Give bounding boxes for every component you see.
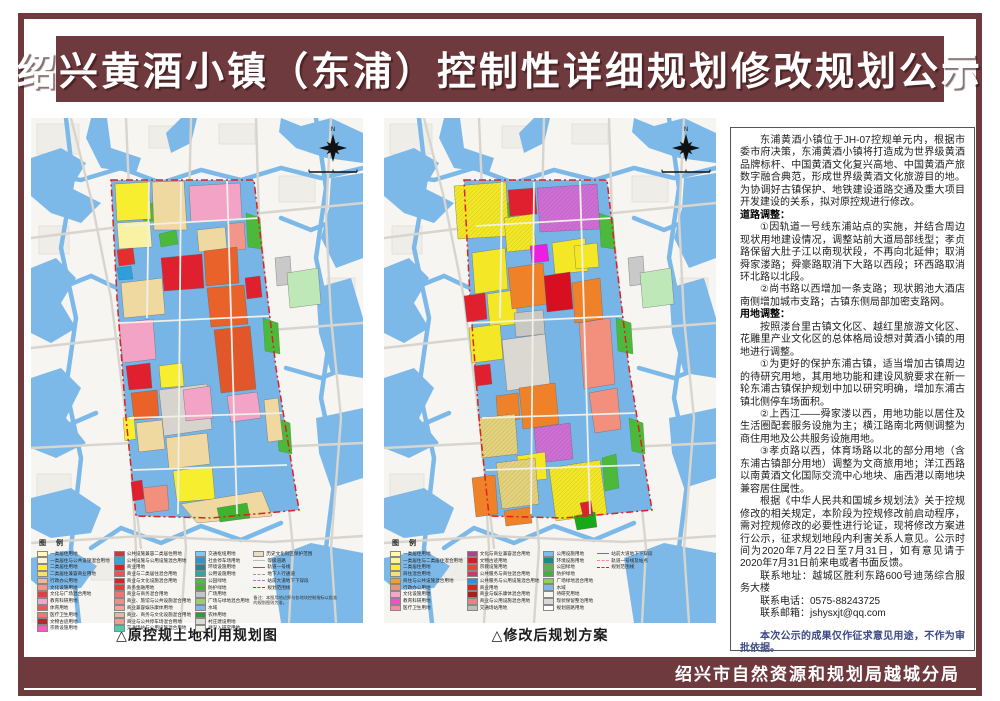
legend-item-label: 防护绿地 xyxy=(556,571,574,577)
legend-item-label: 公共服务与公用设施混合用地 xyxy=(480,578,540,584)
land-use-parcel xyxy=(214,326,256,393)
legend-line-symbol xyxy=(597,567,609,568)
legend-item-label: 广场绿地混合用地 xyxy=(556,578,593,584)
legend-item-label: 商住与公共设施混合用地 xyxy=(403,578,454,584)
legend-item-label: 教育科研用地 xyxy=(50,598,78,604)
legend-color-swatch xyxy=(390,564,401,571)
legend-item-label: 公共设施与公用设施混合用地 xyxy=(127,558,187,564)
legend-item-label: 站前大道地下下穿段 xyxy=(611,551,652,557)
legend-column: 历史文化街区保护范围等级道路轨道一号线地下人行通道站前大道地下下穿段规划范围线备… xyxy=(253,551,339,631)
notice-paragraph: ②尚书路以西增加一条支路；现状鹅池大酒店南侧增加城市支路；古镇东侧局部加密支路网… xyxy=(740,284,965,309)
legend-line-symbol xyxy=(253,587,265,588)
legend-item-label: 地下人行通道 xyxy=(267,571,295,577)
legend-item-label: 规划道路用地 xyxy=(556,605,584,611)
legend-item: 商业与公用设施混合用地 xyxy=(467,598,540,604)
legend-color-swatch xyxy=(390,578,401,585)
legend-item-label: 宗教设施用地 xyxy=(480,564,508,570)
legend-item-label: 商业用地 xyxy=(480,585,498,591)
legend-item: 等级道路 xyxy=(253,558,339,564)
legend-item: 防护绿地 xyxy=(543,571,593,577)
land-use-parcel xyxy=(189,183,242,222)
legend-item-label: 农林用地 xyxy=(208,612,226,618)
legend-item: 文化设施用地 xyxy=(390,592,463,598)
legend-color-swatch xyxy=(543,591,554,598)
legend-item-label: 广场与绿地混合用地 xyxy=(208,598,249,604)
land-use-parcel xyxy=(117,248,135,266)
legend-color-swatch xyxy=(37,618,48,625)
land-use-parcel xyxy=(464,293,487,322)
legend-column: 公共设施兼容二类居住用地公共设施与公用设施混合用地商业用地商业与二类居住混合用地… xyxy=(114,551,191,631)
legend-item-label: 二类居住用地 xyxy=(50,564,78,570)
legend-item: 商业用地 xyxy=(114,565,191,571)
legend-item: 公用设施用地 xyxy=(195,571,249,577)
legend-item-label: 行政办公用地 xyxy=(403,585,431,591)
legend-color-swatch xyxy=(37,625,48,632)
legend-item: 轨道一号线 xyxy=(253,565,339,571)
notice-paragraph: 按照溇台里古镇文化区、越红里旅游文化区、花雕里产业文化区的总体格局设想对黄酒小镇… xyxy=(740,322,965,359)
contact-line: 联系电话：0575-88243725 xyxy=(740,596,965,608)
legend-color-swatch xyxy=(195,625,206,632)
legend-color-swatch xyxy=(390,557,401,564)
legend-item-label: 文化与商业兼容混合用地 xyxy=(480,551,531,557)
legend-item: 体育用地 xyxy=(37,605,110,611)
legend-item-label: 文物古迹用地 xyxy=(480,558,508,564)
legend-item-label: 商业兼容娱乐康体用地 xyxy=(127,605,173,611)
legend-item: 二类居住用地 xyxy=(390,565,463,571)
legend-title: 图 例 xyxy=(39,538,357,548)
legend-color-swatch xyxy=(37,598,48,605)
legend-color-swatch xyxy=(543,564,554,571)
legend-color-swatch xyxy=(467,564,478,571)
legend-item: 宗教设施用地 xyxy=(467,565,540,571)
land-use-parcel xyxy=(474,364,492,386)
legend-color-swatch xyxy=(37,551,48,558)
land-use-parcel xyxy=(514,310,545,337)
legend-color-swatch xyxy=(195,612,206,619)
legend-color-swatch xyxy=(467,605,478,612)
land-use-parcel xyxy=(166,433,210,469)
notice-paragraph: ①为更好的保护东浦古镇，适当增加古镇周边的待研究用地，其用地功能和建设风貌要求在… xyxy=(740,359,965,409)
legend-line-symbol xyxy=(253,567,265,568)
legend-item-label: 公用设施用地 xyxy=(208,571,236,577)
page-title: 绍兴黄酒小镇（东浦）控制性详细规划修改规划公示 xyxy=(17,41,983,97)
legend-item: 公共设施与公用设施混合用地 xyxy=(114,558,191,564)
land-use-parcel xyxy=(123,416,136,441)
legend-color-swatch xyxy=(37,612,48,619)
legend-item: 社会停车场用地 xyxy=(195,558,249,564)
legend-color-swatch xyxy=(195,571,206,578)
legend-color-swatch xyxy=(114,578,125,585)
legend-item: 商住与公共设施混合用地 xyxy=(390,578,463,584)
legend-item: 商业用地 xyxy=(467,585,540,591)
legend-item-label: 站前大道地下下穿段 xyxy=(267,578,308,584)
legend-item-label: 历史文化街区保护范围 xyxy=(266,551,312,557)
legend-item-label: 文物古迹用地 xyxy=(50,619,78,625)
legend-item-label: 行政办公用地 xyxy=(50,578,78,584)
legend-item: 文物古迹用地 xyxy=(467,558,540,564)
land-use-parcel xyxy=(121,278,165,318)
land-use-parcel xyxy=(245,276,262,299)
land-use-parcel xyxy=(508,188,537,216)
legend-item: 规划道路用地 xyxy=(543,605,593,611)
legend-color-swatch xyxy=(543,578,554,585)
legend-color-swatch xyxy=(195,584,206,591)
legend-item-label: 一类居住用地 xyxy=(403,551,431,557)
legend-color-swatch xyxy=(467,551,478,558)
legend-color-swatch xyxy=(543,551,554,558)
legend-item: 宗教设施用地 xyxy=(37,626,110,632)
legend-item-label: 规划范围线 xyxy=(267,585,290,591)
legend-color-swatch xyxy=(467,557,478,564)
land-use-parcel xyxy=(640,268,674,308)
land-use-parcel xyxy=(173,466,215,502)
legend-item: 环境设施用地 xyxy=(543,558,593,564)
svg-text:N: N xyxy=(331,127,335,133)
legend-item-label: 文化与广场混合用地 xyxy=(50,591,91,597)
legend-item: 商业与文化设施混合用地 xyxy=(114,578,191,584)
legend-item: 文化与广场混合用地 xyxy=(37,592,110,598)
legend-color-swatch xyxy=(543,584,554,591)
legend-color-swatch xyxy=(195,564,206,571)
legend-column: 交通枢纽用地社会停车场用地环境设施用地公用设施用地公园绿地防护绿地广场用地广场与… xyxy=(195,551,249,631)
legend-item-label: 等级道路 xyxy=(267,558,285,564)
legend-item: 交通场站用地 xyxy=(467,605,540,611)
legend-item-label: 水域 xyxy=(556,585,565,591)
legend-item: 商住混合用地 xyxy=(390,571,463,577)
legend-item: 公园绿地 xyxy=(195,578,249,584)
legend-line-symbol xyxy=(597,553,609,554)
legend-item-label: 宗教设施用地 xyxy=(50,625,78,631)
disclaimer-note: 本次公示的成果仅作征求意见用途，不作为审批依据。 xyxy=(740,631,965,656)
green-space xyxy=(602,454,619,491)
legend-item: 教育科研用地 xyxy=(37,598,110,604)
land-use-parcel xyxy=(119,319,156,363)
legend-item: 公共服务与公用设施混合用地 xyxy=(467,578,540,584)
legend-item-label: 商业与公用设施混合用地 xyxy=(480,598,531,604)
modified-map-caption: △修改后规划方案 xyxy=(384,625,716,645)
legend-item-label: 商业、旅馆与公共设施混合用地 xyxy=(127,598,191,604)
legend-line-symbol xyxy=(597,560,609,561)
legend-item-label: 商业与二类居住混合用地 xyxy=(127,571,178,577)
legend-color-swatch xyxy=(37,591,48,598)
legend-color-swatch xyxy=(467,584,478,591)
green-space xyxy=(263,318,280,354)
legend-item-label: 医疗卫生用地 xyxy=(50,612,78,618)
legend-item-label: 商业、商务与文化设施混合用地 xyxy=(127,612,191,618)
legend-item-label: 水域 xyxy=(208,605,217,611)
legend-item: 农林用地 xyxy=(195,612,249,618)
legend-item-label: 医疗卫生用地 xyxy=(403,605,431,611)
legend-item: 广场用地 xyxy=(195,592,249,598)
legend-item-label: 公园绿地 xyxy=(556,564,574,570)
legend-color-swatch xyxy=(195,557,206,564)
legend-item: 一类居住与公共设施混合用地 xyxy=(37,558,110,564)
legend-color-swatch xyxy=(114,598,125,605)
legend-item-label: 商住混合用地 xyxy=(403,571,431,577)
legend-color-swatch xyxy=(390,551,401,558)
legend-column: 一类居住用地一类居住与二类居住混合用地二类居住用地商住混合用地商住与公共设施混合… xyxy=(390,551,463,611)
legend-color-swatch xyxy=(37,605,48,612)
legend-item-label: 防护绿地 xyxy=(208,585,226,591)
notice-section-heading: 道路调整： xyxy=(740,210,965,222)
legend-item: 行政办公用地 xyxy=(37,578,110,584)
legend-column: 文化与商业兼容混合用地文物古迹用地宗教设施用地公共服务与商住混合用地公共服务与公… xyxy=(467,551,540,611)
legend-line-symbol xyxy=(253,580,265,581)
legend-item-label: 环境设施用地 xyxy=(208,564,236,570)
land-use-parcel xyxy=(126,363,152,390)
legend-item-label: 公园绿地 xyxy=(208,578,226,584)
legend-color-swatch xyxy=(114,551,125,558)
legend-item: 文化与商业兼容混合用地 xyxy=(467,551,540,557)
legend-color-swatch xyxy=(195,578,206,585)
legend-item: 商业与二类居住混合用地 xyxy=(114,571,191,577)
legend-item: 商业、旅馆与公共设施混合用地 xyxy=(114,598,191,604)
legend-color-swatch xyxy=(195,591,206,598)
legend-color-swatch xyxy=(195,618,206,625)
land-use-parcel xyxy=(204,247,239,286)
legend-item: 商业、商务与文化设施混合用地 xyxy=(114,612,191,618)
legend-item-label: 公共服务与商住混合用地 xyxy=(480,571,531,577)
legend-item-label: 一类居住与公共设施混合用地 xyxy=(50,558,110,564)
agency-name: 绍兴市自然资源和规划局越城分局 xyxy=(675,660,960,685)
legend-color-swatch xyxy=(37,571,48,578)
legend-item: 商业兼容娱乐康体用地 xyxy=(114,605,191,611)
legend-color-swatch xyxy=(390,591,401,598)
legend-item: 教育科研用地 xyxy=(390,598,463,604)
notice-paragraph: ②上西江——舜家溇以西，用地功能以居住及生活圈配套服务设施为主；横江路南北两侧调… xyxy=(740,409,965,446)
legend-item-label: 文化设施用地 xyxy=(403,591,431,597)
legend-item-label: 商业与商务混合用地 xyxy=(127,591,168,597)
land-use-parcel xyxy=(197,227,227,252)
legend-color-swatch xyxy=(37,584,48,591)
legend-item: 待研究用地 xyxy=(543,592,593,598)
legend-item-label: 商业用地 xyxy=(127,564,145,570)
svg-text:N: N xyxy=(684,127,688,133)
legend-item: 村庄建设用地 xyxy=(195,619,249,625)
legend-column: 公用设施用地环境设施用地公园绿地防护绿地广场绿地混合用地水域待研究用地现状保留整… xyxy=(543,551,593,611)
legend-item-label: 体育用地 xyxy=(50,605,68,611)
legend-item: 广场与绿地混合用地 xyxy=(195,598,249,604)
legend-color-swatch xyxy=(195,605,206,612)
legend-note: 备注：本图用地边界与各地块控制指标以批准的规划图则为准。 xyxy=(253,595,339,606)
legend-item-label: 教育科研用地 xyxy=(403,598,431,604)
land-use-parcel xyxy=(117,266,133,280)
land-use-parcel xyxy=(161,254,204,291)
legend-item-label: 商业与文化设施混合用地 xyxy=(127,578,178,584)
legend-color-swatch xyxy=(114,571,125,578)
legend-item-label: 一类居住用地 xyxy=(50,551,78,557)
legend-item: 历史文化街区保护范围 xyxy=(253,551,339,557)
legend-column: 站前大道地下下穿段轨道一号线及站点规划范围线 xyxy=(597,551,652,611)
green-space xyxy=(616,318,633,354)
legend-color-swatch xyxy=(543,571,554,578)
legend-item: 公园绿地 xyxy=(543,565,593,571)
legend-item: 水域 xyxy=(543,585,593,591)
legend-color-swatch xyxy=(114,612,125,619)
legend-item-label: 轨道一号线 xyxy=(267,564,290,570)
land-use-parcel xyxy=(519,383,559,429)
legend-item: 环境设施用地 xyxy=(195,565,249,571)
legend-item-label: 商业与娱乐康体混合用地 xyxy=(480,591,531,597)
legend-color-swatch xyxy=(467,578,478,585)
legend-color-swatch xyxy=(543,605,554,612)
legend-column: 一类居住用地一类居住与公共设施混合用地二类居住用地二类居住兼容商业用地行政办公用… xyxy=(37,551,110,631)
legend-color-swatch xyxy=(253,551,264,558)
legend-item: 二类居住兼容商业用地 xyxy=(37,571,110,577)
modified-map-legend: 图 例 一类居住用地一类居住与二类居住混合用地二类居住用地商住混合用地商住与公共… xyxy=(390,538,710,611)
legend-columns: 一类居住用地一类居住与公共设施混合用地二类居住用地二类居住兼容商业用地行政办公用… xyxy=(37,551,357,631)
land-use-parcel xyxy=(131,390,159,420)
legend-color-swatch xyxy=(114,618,125,625)
legend-item: 二类居住用地 xyxy=(37,565,110,571)
notice-paragraph: 根据《中华人民共和国城乡规划法》关于控规修改的相关规定，本阶段为控规修改前启动程… xyxy=(740,496,965,571)
legend-color-swatch xyxy=(37,578,48,585)
legend-item: 轨道一号线及站点 xyxy=(597,558,652,564)
land-use-parcel xyxy=(143,485,169,513)
legend-item: 医疗卫生用地 xyxy=(37,612,110,618)
land-use-parcel xyxy=(159,363,184,388)
legend-item-label: 二类居住用地 xyxy=(403,564,431,570)
legend-item: 商业与商务混合用地 xyxy=(114,592,191,598)
legend-color-swatch xyxy=(114,584,125,591)
legend-item-label: 规划范围线 xyxy=(611,564,634,570)
legend-item-label: 待研究用地 xyxy=(556,591,579,597)
land-use-parcel xyxy=(574,243,599,269)
original-plan-map-block: N 图 例 一类居住用地一类居住与公共设施混合用地二类居住用地二类居住兼容商业用… xyxy=(31,118,363,645)
legend-color-swatch xyxy=(195,551,206,558)
legend-color-swatch xyxy=(543,598,554,605)
legend-item-label: 商业与公共停车场混合用地 xyxy=(127,619,182,625)
legend-color-swatch xyxy=(390,584,401,591)
legend-item: 文化设施用地 xyxy=(37,585,110,591)
legend-item: 公共设施兼容二类居住用地 xyxy=(114,551,191,557)
legend-item-label: 一类居住与二类居住混合用地 xyxy=(403,558,463,564)
legend-item-label: 环境设施用地 xyxy=(556,558,584,564)
legend-line-symbol xyxy=(253,574,265,575)
legend-item: 一类居住与二类居住混合用地 xyxy=(390,558,463,564)
legend-item-label: 广场用地 xyxy=(208,591,226,597)
land-use-parcel xyxy=(227,392,261,422)
legend-item: 规划范围线 xyxy=(597,565,652,571)
legend-item: 公用设施用地 xyxy=(543,551,593,557)
legend-item-label: 公共设施兼容二类居住用地 xyxy=(127,551,182,557)
land-use-parcel xyxy=(508,263,547,309)
legend-color-swatch xyxy=(390,605,401,612)
land-use-parcel xyxy=(136,420,165,452)
legend-item: 商业与娱乐康体混合用地 xyxy=(467,592,540,598)
legend-item: 行政办公用地 xyxy=(390,585,463,591)
legend-item-label: 交通场站用地 xyxy=(480,605,508,611)
legend-color-swatch xyxy=(37,557,48,564)
legend-item-label: 村庄建设用地 xyxy=(208,619,236,625)
legend-item: 商务金融用地 xyxy=(114,585,191,591)
legend-item: 地下人行通道 xyxy=(253,571,339,577)
title-banner: 绍兴黄酒小镇（东浦）控制性详细规划修改规划公示 xyxy=(56,36,944,102)
modified-plan-map-block: N 图 例 一类居住用地一类居住与二类居住混合用地二类居住用地商住混合用地商住与… xyxy=(384,118,716,645)
land-use-parcel xyxy=(207,285,248,327)
legend-item-label: 商务金融用地 xyxy=(127,585,155,591)
legend-item-label: 交通场站与公用设施混合用地 xyxy=(127,625,187,631)
land-use-parcel xyxy=(472,248,508,294)
land-use-parcel xyxy=(472,475,498,517)
legend-item-label: 文化设施用地 xyxy=(50,585,78,591)
legend-line-symbol xyxy=(253,560,265,561)
legend-item: 站前大道地下下穿段 xyxy=(597,551,652,557)
legend-color-swatch xyxy=(37,564,48,571)
land-use-parcel xyxy=(502,334,550,391)
legend-color-swatch xyxy=(195,598,206,605)
legend-columns: 一类居住用地一类居住与二类居住混合用地二类居住用地商住混合用地商住与公共设施混合… xyxy=(390,551,710,611)
contact-line: 联系邮箱：jshysxjt@qq.com xyxy=(740,608,965,620)
legend-color-swatch xyxy=(390,598,401,605)
legend-item: 医疗卫生用地 xyxy=(390,605,463,611)
notice-text-panel: 东浦黄酒小镇位于JH-07控规单元内，根据市委市府决策，东浦黄酒小镇将打造成为世… xyxy=(730,127,975,651)
legend-item-label: 二类居住兼容商业用地 xyxy=(50,571,96,577)
legend-item: 文物古迹用地 xyxy=(37,619,110,625)
legend-color-swatch xyxy=(114,557,125,564)
legend-title: 图 例 xyxy=(392,538,710,548)
legend-item: 现状保留整治用地 xyxy=(543,598,593,604)
legend-color-swatch xyxy=(543,557,554,564)
legend-item-label: 交通枢纽用地 xyxy=(208,551,236,557)
legend-item-label: 现状保留整治用地 xyxy=(556,598,593,604)
legend-item: 待深入研究用地 xyxy=(195,626,249,632)
legend-color-swatch xyxy=(467,598,478,605)
legend-item: 一类居住用地 xyxy=(390,551,463,557)
legend-item: 交通场站与公用设施混合用地 xyxy=(114,626,191,632)
legend-color-swatch xyxy=(114,625,125,632)
legend-item: 公共服务与商住混合用地 xyxy=(467,571,540,577)
legend-color-swatch xyxy=(390,571,401,578)
legend-item-label: 待深入研究用地 xyxy=(208,625,240,631)
footer-bar: 绍兴市自然资源和规划局越城分局 xyxy=(24,657,976,688)
legend-item: 交通枢纽用地 xyxy=(195,551,249,557)
legend-item-label: 轨道一号线及站点 xyxy=(611,558,648,564)
land-use-parcel xyxy=(115,182,151,221)
original-map-legend: 图 例 一类居住用地一类居住与公共设施混合用地二类居住用地二类居住兼容商业用地行… xyxy=(37,538,357,631)
legend-item-label: 公用设施用地 xyxy=(556,551,584,557)
notice-paragraph: ①因轨道一号线东浦站点的实施，并结合周边现状用地建设情况，调整站前大道局部线型；… xyxy=(740,222,965,284)
notice-paragraph: ③孝贞路以西，体育场路以北的部分用地（含东浦古镇部分用地）调整为文商旅用地；洋江… xyxy=(740,446,965,496)
legend-color-swatch xyxy=(114,605,125,612)
legend-item: 规划范围线 xyxy=(253,585,339,591)
legend-item: 一类居住用地 xyxy=(37,551,110,557)
land-use-parcel xyxy=(544,272,573,312)
legend-item-label: 社会停车场用地 xyxy=(208,558,240,564)
public-notice-poster: 绍兴黄酒小镇（东浦）控制性详细规划修改规划公示 N 图 例 一类居住用地一类居住… xyxy=(0,0,1000,701)
notice-paragraph: 东浦黄酒小镇位于JH-07控规单元内，根据市委市府决策，东浦黄酒小镇将打造成为世… xyxy=(740,135,965,210)
legend-color-swatch xyxy=(467,571,478,578)
legend-color-swatch xyxy=(467,591,478,598)
contact-line: 联系地址：越城区胜利东路600号迪荡综合服务大楼 xyxy=(740,571,965,596)
legend-item: 站前大道地下下穿段 xyxy=(253,578,339,584)
land-use-parcel xyxy=(287,268,321,308)
legend-item: 水域 xyxy=(195,605,249,611)
legend-color-swatch xyxy=(114,564,125,571)
legend-item: 商业与公共停车场混合用地 xyxy=(114,619,191,625)
legend-color-swatch xyxy=(114,591,125,598)
legend-item: 广场绿地混合用地 xyxy=(543,578,593,584)
notice-section-heading: 用地调整： xyxy=(740,309,965,321)
legend-item: 防护绿地 xyxy=(195,585,249,591)
